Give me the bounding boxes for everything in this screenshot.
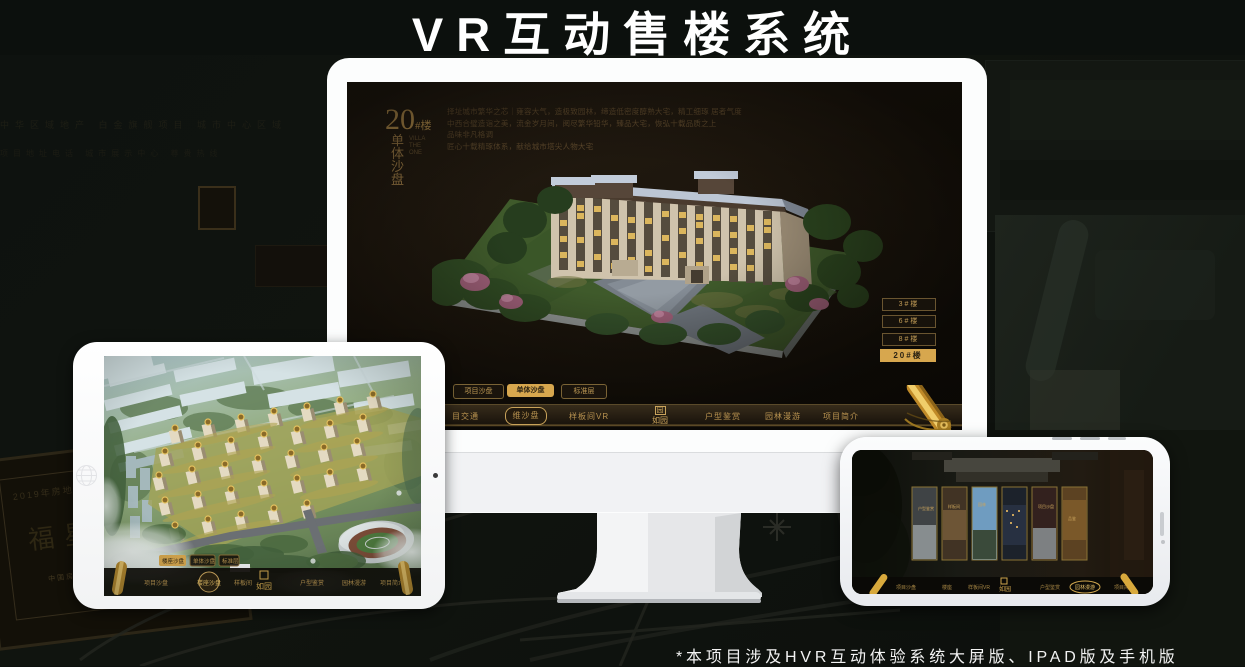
svg-text:项目沙盘: 项目沙盘	[1038, 503, 1054, 509]
svg-text:园林: 园林	[978, 501, 986, 507]
svg-text:楼座: 楼座	[942, 584, 952, 591]
svg-text:户型鉴赏: 户型鉴赏	[1040, 584, 1060, 591]
svg-text:项目沙盘: 项目沙盘	[896, 584, 916, 591]
svg-text:园林漫游: 园林漫游	[1075, 584, 1095, 591]
svg-text:如园: 如园	[999, 585, 1011, 593]
svg-text:品鉴: 品鉴	[1068, 515, 1076, 521]
svg-text:样板间VR: 样板间VR	[968, 584, 990, 591]
svg-text:户型鉴赏: 户型鉴赏	[918, 505, 934, 511]
svg-text:样板间: 样板间	[948, 503, 960, 509]
